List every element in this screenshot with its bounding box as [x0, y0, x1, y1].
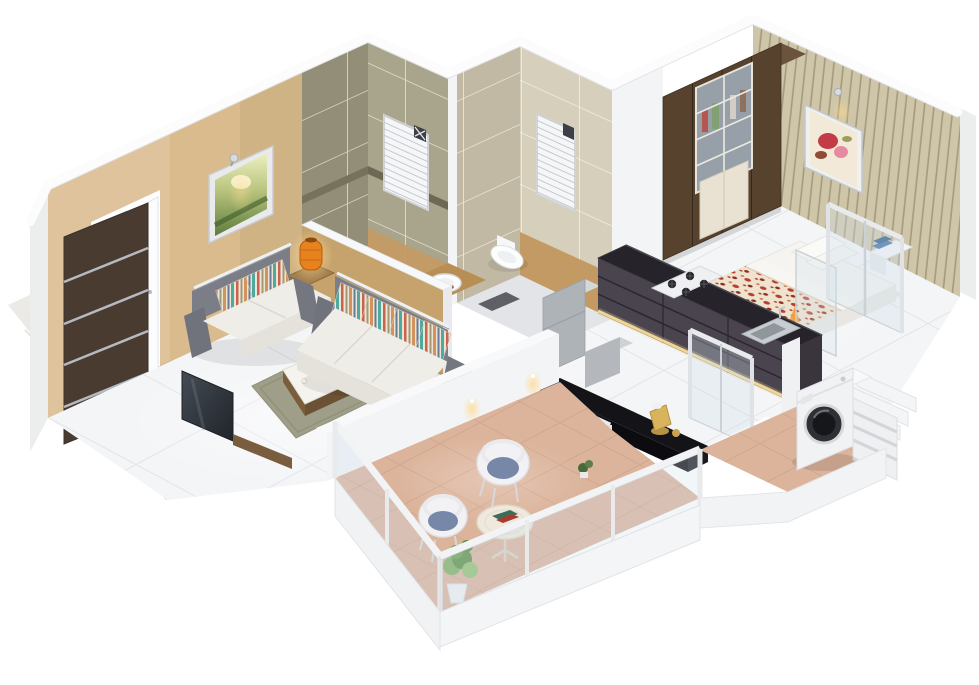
orange-table-lamp [289, 230, 333, 282]
floor-plan-render [0, 0, 979, 685]
louvered-window-wc [537, 114, 575, 211]
blue-seat-cushion [487, 457, 519, 479]
floor-plan-stage [0, 0, 979, 685]
blue-seat-cushion [428, 511, 458, 531]
downlight-dot [470, 399, 474, 403]
lamp-cap [305, 238, 317, 243]
hanging-clothes-red [702, 110, 708, 132]
outer-right-wall [960, 108, 976, 300]
brass-jar [672, 429, 680, 437]
lamp-body [300, 240, 322, 270]
door-handle [148, 290, 152, 294]
washer-knob [841, 377, 846, 382]
downlight-dot [531, 374, 535, 378]
bathroom-wc-walls [457, 41, 612, 319]
